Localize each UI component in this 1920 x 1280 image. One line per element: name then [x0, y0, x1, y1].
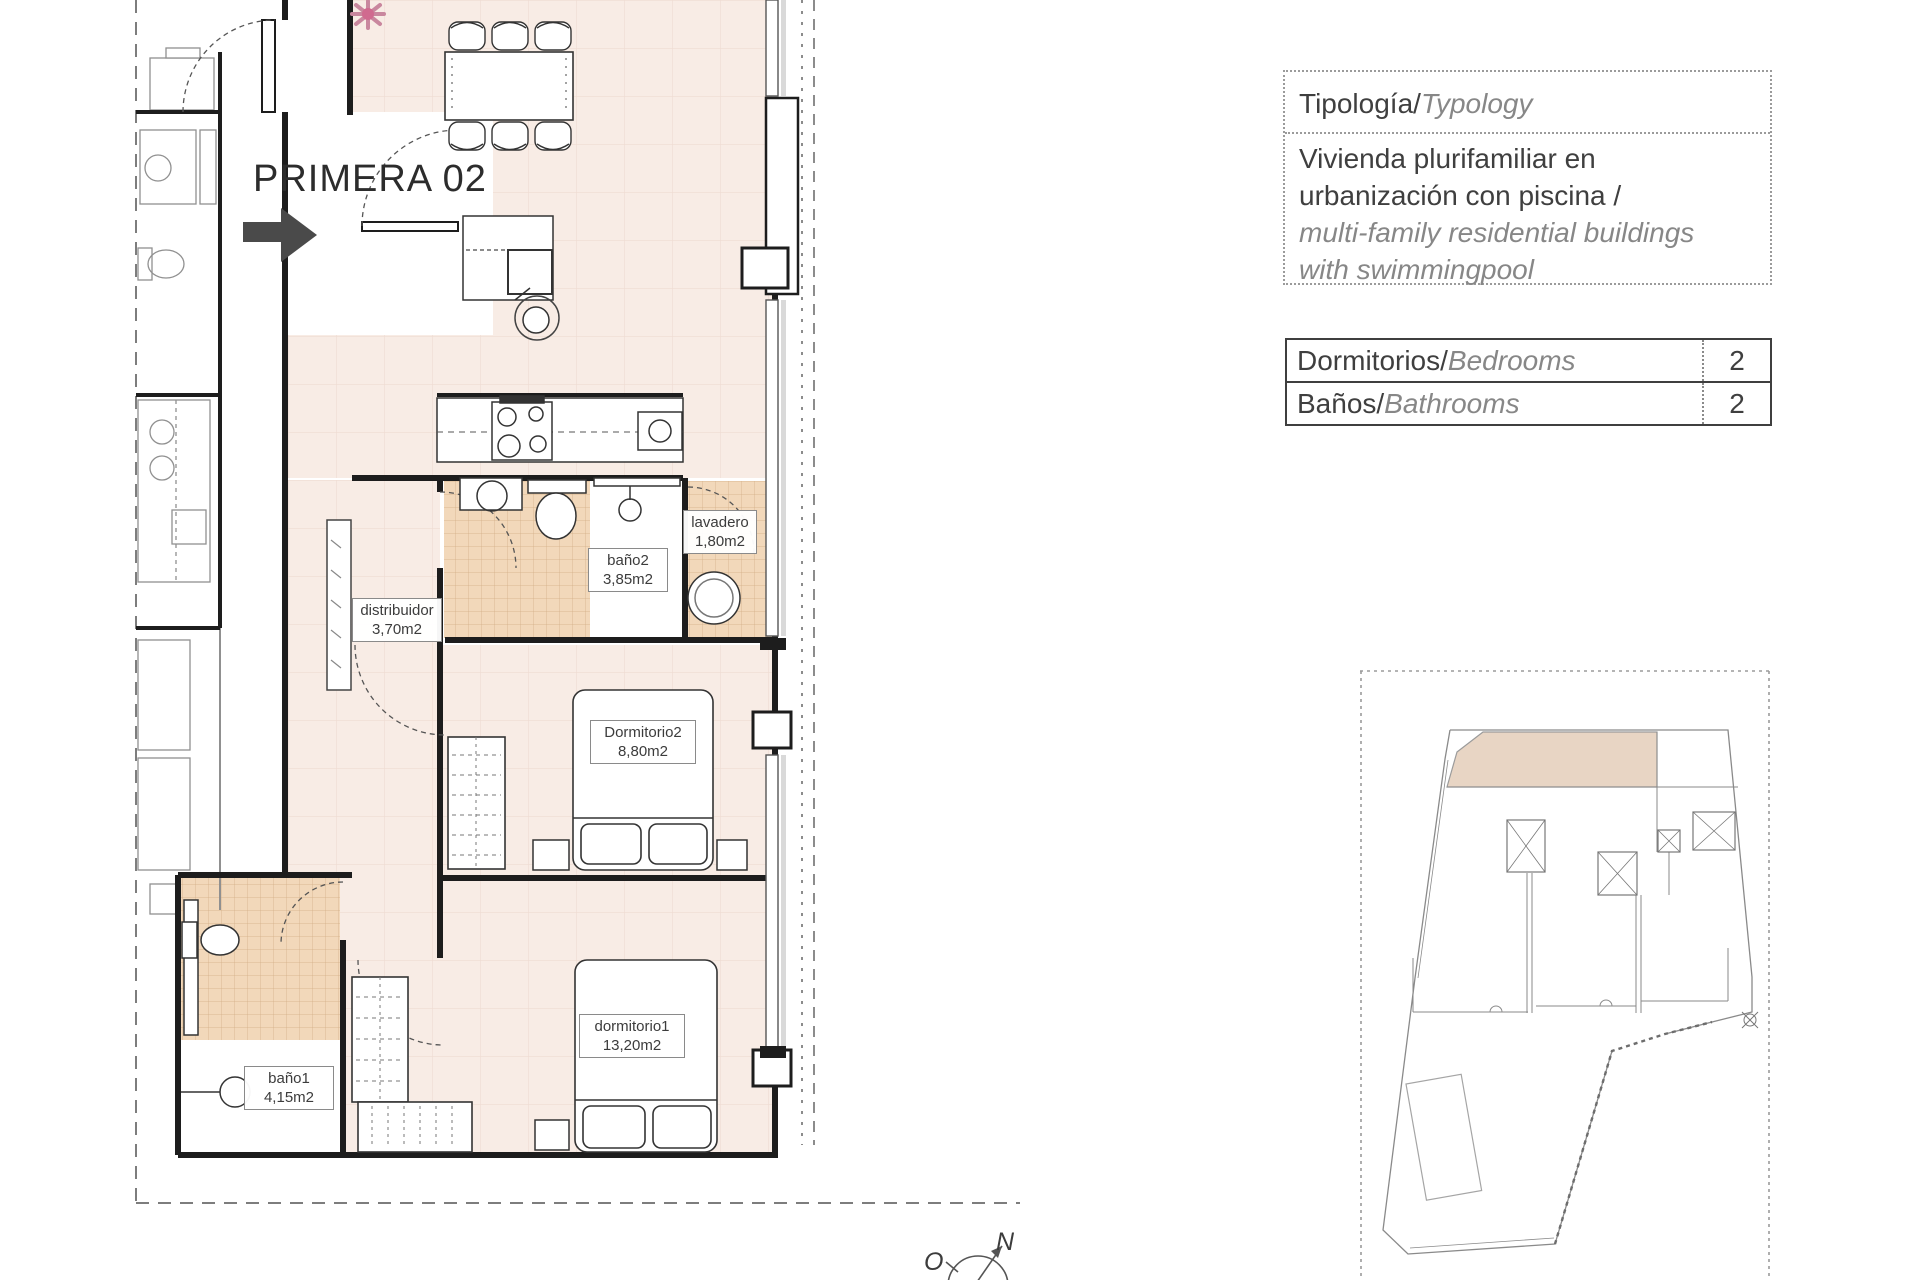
- pool: [1406, 1074, 1482, 1200]
- page: N O PRIMERA 02 distribuidor 3,70m2 baño2…: [0, 0, 1920, 1280]
- bedrooms-value: 2: [1702, 340, 1770, 381]
- entry-arrow-icon: [243, 208, 317, 262]
- wardrobe-dorm1: [352, 977, 408, 1102]
- room-name: lavadero: [688, 513, 752, 532]
- toilet-icon: [528, 480, 586, 493]
- kitchen-counter: [437, 398, 683, 462]
- room-label-dormitorio1: dormitorio1 13,20m2: [579, 1014, 685, 1058]
- bedrooms-label: Dormitorios/Bedrooms: [1287, 345, 1702, 377]
- room-area: 4,15m2: [249, 1088, 329, 1107]
- table-row-bathrooms: Baños/Bathrooms 2: [1287, 381, 1770, 424]
- room-label-bano2: baño2 3,85m2: [588, 548, 668, 592]
- room-area: 3,70m2: [357, 620, 437, 639]
- bedrooms-label-en: Bedrooms: [1448, 345, 1576, 376]
- sink-icon: [460, 478, 522, 510]
- room-label-distribuidor: distribuidor 3,70m2: [352, 598, 442, 642]
- wardrobe-dorm1-low: [358, 1102, 472, 1152]
- flower-icon: [352, 1, 384, 28]
- plot-hatched-edge: [1555, 1022, 1712, 1244]
- compass-north-label: N: [996, 1228, 1015, 1256]
- bathrooms-label: Baños/Bathrooms: [1287, 388, 1702, 420]
- unit-title: PRIMERA 02: [253, 158, 487, 201]
- typology-desc-en-line2: with swimmingpool: [1299, 251, 1756, 288]
- plot-outline: [1383, 730, 1752, 1254]
- typology-desc-en-line1: multi-family residential buildings: [1299, 214, 1756, 251]
- room-label-dormitorio2: Dormitorio2 8,80m2: [590, 720, 696, 764]
- table-row-bedrooms: Dormitorios/Bedrooms 2: [1287, 340, 1770, 381]
- room-area: 8,80m2: [595, 742, 691, 761]
- room-name: baño1: [249, 1069, 329, 1088]
- typology-description: Vivienda plurifamiliar en urbanización c…: [1285, 134, 1770, 288]
- room-name: dormitorio1: [584, 1017, 680, 1036]
- compass-icon: N O: [924, 1228, 1015, 1280]
- bedrooms-label-es: Dormitorios/: [1297, 345, 1448, 376]
- bathrooms-value: 2: [1702, 383, 1770, 424]
- room-area: 1,80m2: [688, 532, 752, 551]
- site-compass-icon: [1742, 1012, 1758, 1028]
- compass-west-label: O: [924, 1248, 943, 1276]
- typology-panel: Tipología/Typology Vivienda plurifamilia…: [1283, 70, 1772, 285]
- typology-desc-es-line2: urbanización con piscina /: [1299, 177, 1756, 214]
- typology-desc-es-line1: Vivienda plurifamiliar en: [1299, 140, 1756, 177]
- room-label-lavadero: lavadero 1,80m2: [683, 510, 757, 554]
- stove-icon: [492, 396, 552, 460]
- washing-machine-icon: [688, 572, 740, 624]
- site-plan: [1358, 668, 1772, 1280]
- nightstand: [717, 840, 747, 870]
- duct-shaft: [327, 520, 351, 690]
- nightstand: [535, 1120, 569, 1150]
- typology-title: Tipología/Typology: [1285, 72, 1770, 134]
- neighbour-unit: [138, 48, 220, 914]
- bathrooms-label-en: Bathrooms: [1384, 388, 1519, 419]
- specs-table: Dormitorios/Bedrooms 2 Baños/Bathrooms 2: [1285, 338, 1772, 426]
- nightstand: [533, 840, 569, 870]
- bed-dorm2-icon: [573, 690, 713, 870]
- typology-title-es: Tipología/: [1299, 88, 1421, 119]
- bathrooms-label-es: Baños/: [1297, 388, 1384, 419]
- toilet-icon: [182, 922, 197, 958]
- wardrobe-dorm2: [448, 737, 505, 869]
- room-area: 3,85m2: [593, 570, 663, 589]
- floor-plan-drawing: N O: [0, 0, 1060, 1280]
- dining-table-icon: [445, 22, 573, 150]
- room-name: Dormitorio2: [595, 723, 691, 742]
- unit-highlight: [1447, 732, 1657, 787]
- room-area: 13,20m2: [584, 1036, 680, 1055]
- facade-dashed-lines: [802, 0, 814, 1145]
- typology-title-en: Typology: [1421, 88, 1533, 119]
- room-name: distribuidor: [357, 601, 437, 620]
- room-name: baño2: [593, 551, 663, 570]
- room-label-bano1: baño1 4,15m2: [244, 1066, 334, 1110]
- core-boxes: [1507, 812, 1735, 895]
